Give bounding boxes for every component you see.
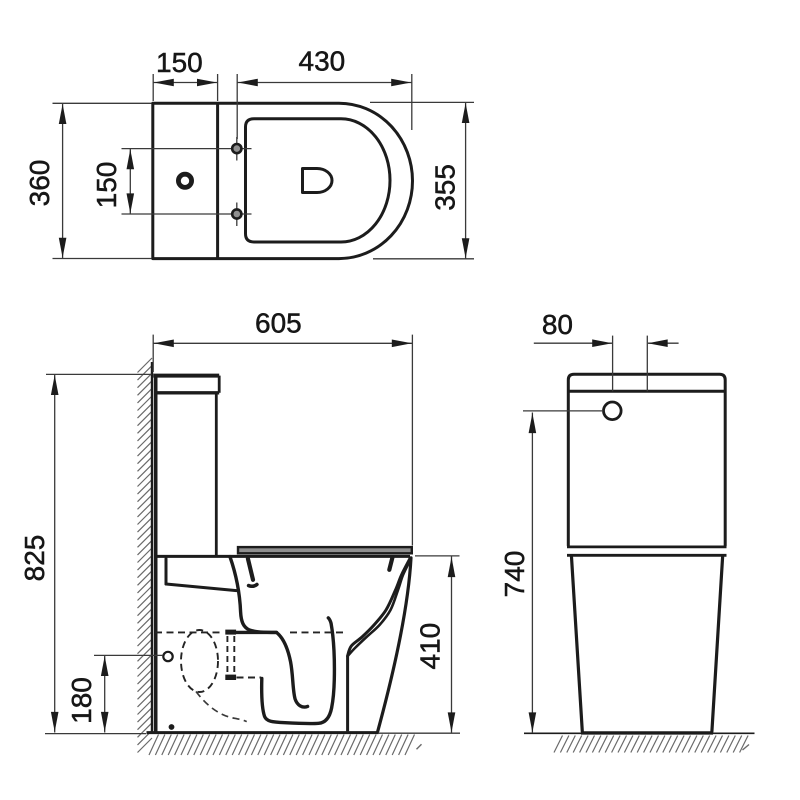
svg-text:430: 430 [299,46,346,77]
svg-text:180: 180 [66,677,97,724]
svg-text:605: 605 [255,307,302,338]
svg-text:825: 825 [19,535,50,582]
svg-text:150: 150 [91,162,122,209]
svg-text:740: 740 [499,551,530,598]
svg-text:360: 360 [24,160,55,207]
svg-text:410: 410 [415,623,446,670]
svg-text:355: 355 [429,164,460,211]
svg-text:80: 80 [542,309,573,340]
svg-text:150: 150 [156,47,203,78]
